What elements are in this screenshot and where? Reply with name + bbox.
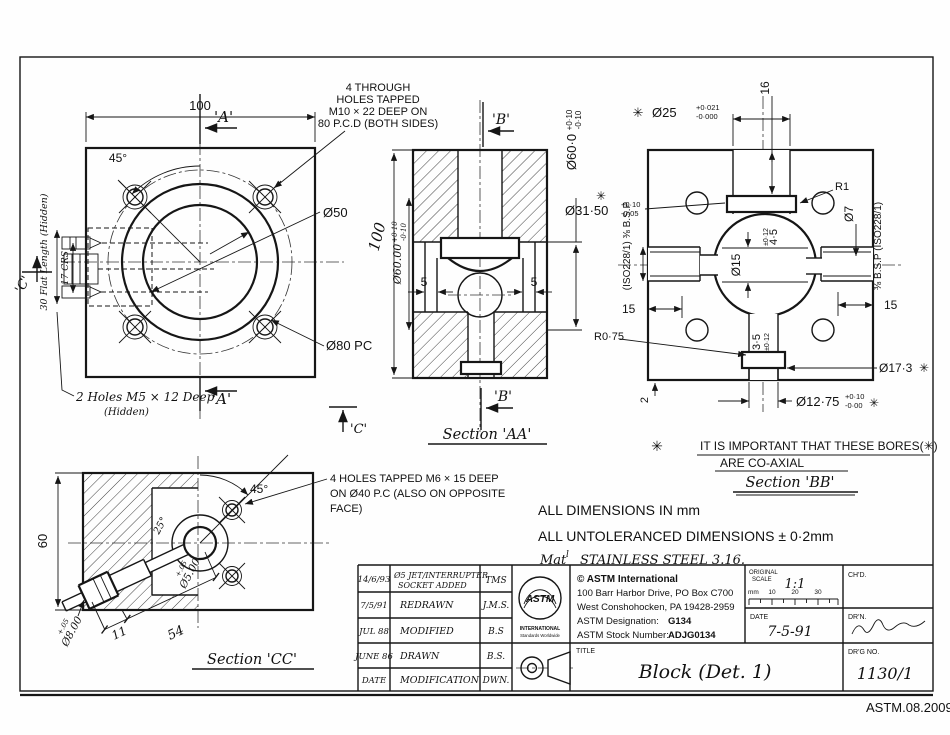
dia-80pc-callout: Ø80 PC [271, 320, 372, 353]
dim-2: 2 [639, 383, 655, 403]
dim-17crs: 17 CRS [61, 243, 73, 293]
rev-by-header: DWN. [482, 676, 510, 686]
designation-value: G134 [668, 616, 692, 627]
corner-hole [812, 319, 834, 341]
bore-hw-tol-dn: -0·10 [400, 222, 408, 240]
section-aa-title: Section 'AA' [428, 427, 547, 444]
dim-100-label: 100 [365, 220, 390, 253]
drn-label: DR'N. [848, 614, 867, 621]
footer-reference: ASTM.08.2009 [866, 700, 950, 715]
dim-45: 4·5 ±0·12 [763, 228, 780, 246]
dim-bore-printed: Ø60·0 +0·10 -0·10 [547, 109, 583, 330]
dia-7-label: Ø7 [842, 206, 856, 222]
hidden-socket-assembly [62, 228, 214, 306]
marker-c-label: 'C' [12, 274, 34, 296]
r075-callout: R0·75 [594, 331, 746, 355]
coaxial-asterisk: ✳ [919, 361, 929, 375]
crs-label: 17 CRS [61, 251, 71, 285]
bottom-bore-tol-up: +0·10 [845, 392, 864, 401]
rev-by: B.S. [486, 652, 505, 662]
bottom-bore-label: Ø12·75 [796, 394, 839, 409]
rev-date-header: DATE [361, 676, 387, 686]
dim-16-label: 16 [758, 81, 772, 95]
bore-tol-up: +0·10 [565, 109, 574, 130]
corner-hole [686, 319, 708, 341]
sphere-dia-label: Ø31·50 [565, 203, 608, 218]
note-line: 4 THROUGH [346, 82, 411, 94]
bottom-bore-tol-dn: -0·00 [845, 401, 863, 410]
drawing-sheet: 100 45° 'A' 'A' 'C' 'C' [0, 0, 950, 735]
section-aa-view: 5 5 100 Ø60.00 +0·10 -0·10 [365, 100, 583, 444]
bottom-bore-dim: Ø12·75 +0·10 -0·00 ✳ [718, 382, 879, 410]
drg-no-label: DR'G NO. [848, 649, 879, 656]
note-m6-holes: 4 HOLES TAPPED M6 × 15 DEEP ON Ø40 P.C (… [245, 473, 505, 515]
marker-b-label: 'B' [494, 389, 512, 405]
slot-5-label: 5 [421, 275, 428, 289]
rev-mod-header: MODIFICATION [399, 675, 480, 686]
dim-11-label: 11 [109, 624, 129, 643]
address-line2: West Conshohocken, PA 19428-2959 [577, 602, 735, 613]
date-value: 7-5-91 [767, 624, 812, 640]
front-view: 100 45° 'A' 'A' 'C' 'C' [12, 82, 438, 437]
dim-35-label: 3·5 [751, 334, 763, 350]
r1-label: R1 [835, 181, 849, 193]
angle-45-label: 45° [109, 151, 127, 165]
astm-logo: ASTM INTERNATIONAL Standards Worldwide [519, 577, 561, 638]
note-line: ON Ø40 P.C (ALSO ON OPPOSITE [330, 488, 505, 500]
tapped-hole [219, 497, 245, 523]
designation-label: ASTM Designation: [577, 616, 659, 627]
scale-label: ORIGINAL [749, 570, 778, 576]
drawing-title: Block (Det. 1) [638, 661, 772, 683]
dia-15-label: Ø15 [729, 253, 743, 276]
dim-flat-length: 30 Flat Length (Hidden) [39, 193, 57, 310]
address-line1: 100 Barr Harbor Drive, PO Box C700 [577, 588, 733, 599]
rev-mod: REDRAWN [399, 600, 454, 611]
note-line: 80 P.C.D (BOTH SIDES) [318, 118, 438, 130]
logo-text: ASTM [525, 594, 555, 605]
marker-a-label: 'A' [214, 108, 233, 126]
bottom-plug [742, 352, 785, 368]
dim-45-tol: ±0·12 [763, 228, 770, 246]
section-cc-label: Section 'CC' [207, 652, 297, 668]
sphere-tol-up: +0·10 [621, 200, 640, 209]
plug-foot [461, 362, 501, 374]
marker-b-label: 'B' [492, 112, 510, 128]
top-bore-dim: ✳ Ø25 +0·021 -0·000 [633, 103, 790, 146]
jet-disc [441, 238, 519, 258]
jet-disc [727, 196, 796, 212]
drawn-signature [852, 620, 925, 634]
rev-by: TMS [485, 576, 506, 586]
marker-c-label: 'C' [350, 422, 367, 437]
dim-height-60: 60 [35, 473, 83, 610]
dia-173-callout: Ø17·3 ✳ [787, 361, 929, 375]
r075-label: R0·75 [594, 331, 624, 343]
rev-date: 14/6/93 [358, 575, 391, 585]
rev-mod: SOCKET ADDED [398, 581, 467, 590]
note-dimensions: ALL DIMENSIONS IN mm [538, 502, 700, 518]
socket-bore-callout: +.05 Ø8.00 [52, 611, 85, 650]
drg-no-value: 1130/1 [857, 664, 913, 683]
marker-a-label: 'A' [212, 390, 231, 408]
section-bb-label: Section 'BB' [745, 475, 834, 491]
stock-value: ADJG0134 [668, 630, 716, 641]
section-aa-label: Section 'AA' [443, 427, 532, 443]
rev-mod: Ø5 JET/INTERRUPTER [393, 571, 488, 580]
section-c-marker-bottom: 'C' [329, 407, 367, 437]
coaxial-note-line1: IT IS IMPORTANT THAT THESE BORES(✳) [700, 439, 938, 453]
sphere-tol-dn: -0·05 [621, 209, 639, 218]
rev-date: JUL 88 [357, 627, 389, 637]
dim-15-label: 15 [622, 302, 636, 316]
rev-mod: MODIFIED [399, 626, 454, 637]
dim-35: 3·5 ±0·12 [751, 333, 771, 351]
note-line: FACE) [330, 503, 362, 515]
coaxial-asterisk: ✳ [633, 105, 644, 120]
ruler-tick-label: 30 [814, 589, 822, 596]
tapped-hole [119, 311, 151, 343]
ruler-tick-label: 20 [791, 589, 799, 596]
engineering-drawing: 100 45° 'A' 'A' 'C' 'C' [0, 0, 950, 735]
logo-subtitle: INTERNATIONAL [520, 626, 560, 632]
date-label: DATE [750, 614, 768, 621]
rev-date: 7/5/91 [360, 601, 387, 611]
note-line: M10 × 22 DEEP ON [329, 106, 428, 118]
rev-date: JUNE 86 [353, 652, 393, 662]
scale-cell: ORIGINAL SCALE 1:1 mm 10 20 30 [748, 570, 838, 605]
rev-by: J.M.S. [481, 601, 510, 611]
title-block: 14/6/93 Ø5 JET/INTERRUPTER SOCKET ADDED … [353, 565, 933, 691]
top-bore-tol-dn: -0·000 [696, 112, 718, 121]
material-label: STAINLESS STEEL 3.16. [580, 553, 745, 568]
coaxial-note: ✳ IT IS IMPORTANT THAT THESE BORES(✳) AR… [651, 438, 938, 471]
revision-table: 14/6/93 Ø5 JET/INTERRUPTER SOCKET ADDED … [353, 571, 509, 686]
section-bb-view: Ø15 ✳ Ø25 +0·021 -0·000 16 R1 Ø7 ⅜ B.S.P… [565, 81, 938, 495]
title-label: TITLE [576, 648, 595, 655]
coaxial-asterisk: ✳ [869, 396, 879, 410]
dim-35-tol: ±0·12 [764, 333, 771, 351]
tapped-hole [249, 311, 281, 343]
slot-dim-left: 5 [408, 275, 453, 292]
tapped-hole [219, 563, 245, 589]
dia-80pc-label: Ø80 PC [326, 338, 372, 353]
dim-15-left: 15 [622, 296, 682, 318]
dim-15-label: 15 [884, 298, 898, 312]
slot-5-label: 5 [531, 275, 538, 289]
dim-15-right: 15 [838, 292, 898, 316]
projection-symbol [516, 652, 574, 684]
dim-2-label: 2 [639, 397, 651, 403]
socket-angle-label: 25° [151, 515, 170, 537]
bore-label: Ø60·0 [564, 134, 579, 170]
section-bb-title: Section 'BB' [733, 475, 858, 495]
slot-dim-right: 5 [507, 275, 552, 292]
note-m5-label: 2 Holes M5 × 12 Deep [75, 390, 215, 404]
astm-address: © ASTM International 100 Barr Harbor Dri… [577, 574, 735, 641]
top-bore-label: Ø25 [652, 105, 677, 120]
rev-by: B.S [487, 627, 504, 637]
general-notes: ALL DIMENSIONS IN mm ALL UNTOLERANCED DI… [538, 502, 834, 568]
material-sup: l [566, 550, 569, 560]
section-b-marker-top: 'B' [483, 102, 514, 147]
ruler-unit: mm [748, 589, 759, 596]
section-cc-title: Section 'CC' [192, 652, 314, 669]
material-prefix: Mat [539, 553, 567, 568]
bore-hw-tol-up: +0·10 [391, 221, 399, 243]
angle-45-label: 45° [250, 482, 268, 496]
flat-length-label: 30 Flat Length (Hidden) [39, 193, 50, 310]
dim-54-label: 54 [165, 623, 186, 644]
chd-label: CH'D. [848, 572, 867, 579]
dia-50-callout: Ø50 [151, 205, 348, 292]
logo-tagline: Standards Worldwide [520, 633, 560, 638]
corner-hole [686, 192, 708, 214]
dia-173-label: Ø17·3 [879, 361, 913, 375]
org-name: © ASTM International [577, 574, 678, 585]
rev-mod: DRAWN [399, 651, 440, 662]
scale-label: SCALE [752, 577, 772, 583]
coaxial-asterisk: ✳ [596, 189, 606, 203]
stock-label: ASTM Stock Number: [577, 630, 669, 641]
note-line: 4 HOLES TAPPED M6 × 15 DEEP [330, 473, 499, 485]
bore-hw-label: Ø60.00 [391, 244, 404, 286]
bore-tol-dn: -0·10 [574, 110, 583, 129]
angle-45: 45° [200, 455, 288, 543]
bsp-right-label: ⅜ B.S.P (ISO228/1) [873, 202, 884, 290]
ruler-tick-label: 10 [768, 589, 776, 596]
corner-hole [812, 192, 834, 214]
dim-60-label: 60 [35, 534, 50, 548]
note-untoleranced: ALL UNTOLERANCED DIMENSIONS ± 0·2mm [538, 528, 834, 544]
top-bore-tol-up: +0·021 [696, 103, 720, 112]
coaxial-note-line2: ARE CO-AXIAL [720, 456, 804, 470]
note-m5-hidden-label: (Hidden) [104, 407, 149, 418]
coaxial-asterisk: ✳ [651, 438, 663, 454]
dia-50-label: Ø50 [323, 205, 348, 220]
note-line: HOLES TAPPED [336, 94, 419, 106]
section-b-marker-bottom: 'B' [481, 388, 513, 430]
